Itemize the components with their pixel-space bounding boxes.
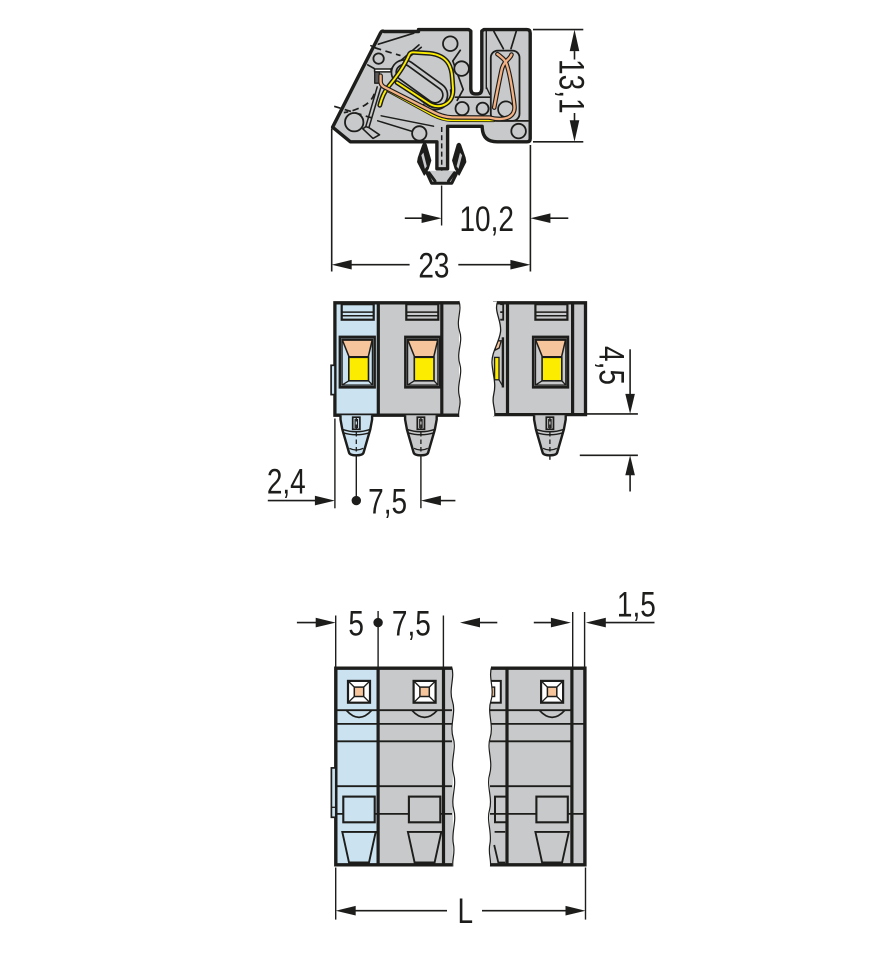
svg-text:1,5: 1,5 bbox=[617, 584, 656, 624]
svg-text:23: 23 bbox=[418, 245, 449, 285]
svg-text:7,5: 7,5 bbox=[368, 481, 407, 521]
svg-text:5: 5 bbox=[348, 603, 364, 643]
svg-text:2,4: 2,4 bbox=[267, 461, 306, 501]
svg-text:10,2: 10,2 bbox=[459, 199, 513, 239]
svg-text:4,5: 4,5 bbox=[592, 346, 632, 385]
svg-text:7,5: 7,5 bbox=[392, 603, 431, 643]
svg-text:13,1: 13,1 bbox=[552, 59, 592, 113]
svg-text:L: L bbox=[458, 891, 474, 931]
